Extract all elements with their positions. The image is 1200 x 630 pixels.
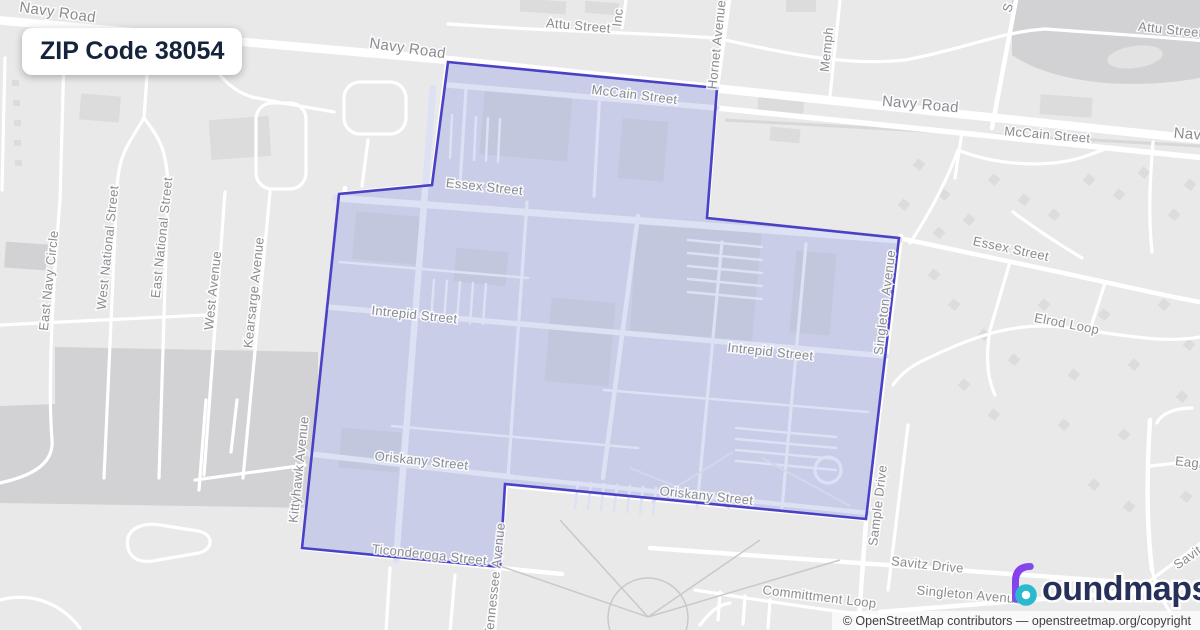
boundmaps-drop-icon [1012,563,1034,603]
logo-wordmark: oundmaps [1042,570,1200,608]
attribution-bar: © OpenStreetMap contributors — openstree… [832,611,1200,630]
zip-code-map-card: Navy RoadNavy RoadNavy RoadNavyAttu Stre… [0,0,1200,630]
street-label-navy-road-4: Navy [1173,125,1200,145]
zip-code-badge: ZIP Code 38054 [22,28,242,75]
map-canvas[interactable]: Navy RoadNavy RoadNavy RoadNavyAttu Stre… [0,0,1200,630]
street-label-inc-street: Inc [609,7,626,27]
attribution-link[interactable]: © OpenStreetMap contributors — openstree… [843,614,1191,628]
boundmaps-logo: oundmaps [1004,558,1200,610]
